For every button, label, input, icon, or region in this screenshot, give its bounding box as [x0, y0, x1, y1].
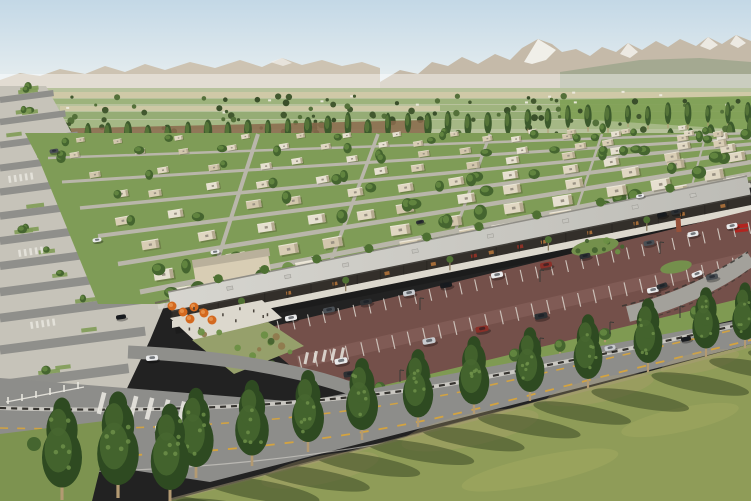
tree-highlight — [620, 147, 625, 152]
scatter-tree — [453, 110, 459, 116]
house-roof-unit — [252, 203, 255, 205]
scatter-tree — [141, 110, 147, 116]
umbrella-top — [180, 309, 184, 313]
tree-leaf-highlight — [176, 442, 180, 446]
house-roof-unit — [292, 200, 295, 202]
scatter-tree — [736, 99, 741, 104]
tree-highlight — [344, 144, 349, 150]
house-roof-unit — [512, 206, 516, 209]
scatter-tree — [132, 104, 137, 109]
tree-highlight — [42, 367, 48, 372]
house-roof-unit — [688, 132, 690, 134]
tree-leaf-highlight — [173, 452, 177, 456]
scatter-dot — [574, 101, 577, 103]
scatter-dot — [525, 101, 528, 103]
tree-leaf-highlight — [193, 452, 197, 456]
scatter-tree — [231, 117, 237, 123]
tree-highlight — [409, 200, 417, 206]
house-roof-unit — [346, 135, 348, 136]
tree-leaf-highlight — [186, 410, 190, 414]
tree-leaf-highlight — [66, 418, 71, 423]
tree-leaf-highlight — [301, 430, 305, 434]
scatter-tree — [578, 109, 583, 114]
tree-leaf-highlight — [306, 401, 310, 405]
tree-highlight — [550, 147, 556, 151]
scatter-dot — [253, 309, 255, 312]
car-windshield — [149, 356, 155, 359]
scatter-tree — [537, 105, 542, 110]
scatter-tree — [531, 98, 537, 104]
scatter-tree — [497, 113, 501, 117]
tree-leaf-highlight — [176, 435, 180, 439]
tree-leaf-highlight — [119, 446, 124, 451]
scatter-dot — [622, 91, 625, 93]
tree-leaf-highlight — [737, 323, 740, 326]
shape-rect — [60, 106, 440, 111]
scatter-tree — [281, 112, 287, 118]
tree-highlight — [245, 122, 250, 133]
tree-highlight — [585, 107, 589, 119]
tree-leaf-highlight — [652, 332, 655, 335]
scatter-tree — [67, 122, 71, 126]
scatter-dot — [239, 307, 241, 310]
scatter-tree — [255, 97, 261, 103]
post-arm — [540, 338, 544, 339]
scatter-dot — [350, 95, 353, 97]
house-roof-unit — [213, 167, 215, 169]
palm-crown — [238, 298, 245, 305]
house-roof-unit — [511, 159, 514, 161]
post-arm — [540, 270, 544, 271]
scatter-tree — [632, 98, 638, 104]
scatter-tree — [538, 115, 544, 121]
tree-highlight — [146, 171, 151, 177]
tree-highlight — [345, 114, 349, 128]
tree-leaf-highlight — [364, 397, 368, 401]
tree-leaf-highlight — [470, 372, 473, 375]
tree-leaf-highlight — [705, 300, 708, 303]
scatter-tree — [592, 247, 598, 253]
tree-highlight — [334, 134, 339, 138]
scatter-dot — [222, 313, 224, 316]
scatter-dot — [548, 96, 551, 98]
tree-highlight — [465, 116, 469, 129]
house-roof-unit — [351, 158, 353, 160]
scatter-tree — [225, 110, 228, 113]
scatter-tree — [408, 108, 415, 115]
umbrella-top — [169, 303, 173, 307]
tree-mid-highlight — [579, 322, 592, 342]
tree-highlight — [21, 107, 24, 111]
house-roof-unit — [162, 169, 164, 171]
post-arm — [680, 306, 684, 307]
tree-leaf-highlight — [163, 451, 167, 455]
tree-leaf-highlight — [747, 301, 750, 304]
tree-highlight — [710, 153, 718, 159]
tree-highlight — [696, 132, 700, 138]
tree-leaf-highlight — [126, 439, 131, 444]
tree-leaf-highlight — [709, 332, 712, 335]
scatter-tree — [221, 117, 225, 121]
scatter-tree — [603, 237, 610, 244]
house-roof-unit — [682, 127, 684, 128]
scatter-dot — [189, 328, 191, 331]
scatter-tree — [511, 105, 517, 111]
house-roof-unit — [174, 212, 177, 214]
cafe-umbrella — [208, 316, 217, 325]
tree-highlight — [631, 129, 635, 133]
tree-highlight — [80, 295, 84, 299]
house-roof-unit — [717, 133, 719, 135]
scatter-tree — [575, 248, 580, 253]
scatter-tree — [101, 117, 106, 122]
tree-highlight — [443, 215, 449, 223]
tree-highlight — [529, 170, 536, 175]
tree-highlight — [574, 135, 579, 139]
tree-highlight — [475, 206, 483, 214]
tree-leaf-highlight — [303, 418, 307, 422]
scatter-dot — [268, 99, 271, 101]
tree-highlight — [340, 171, 345, 178]
tree-mid-highlight — [50, 409, 68, 437]
scatter-tree — [730, 105, 734, 109]
house-roof-unit — [465, 197, 468, 200]
tree-highlight — [599, 147, 604, 152]
scatter-tree — [620, 244, 624, 248]
scatter-tree — [592, 119, 599, 126]
tree-leaf-highlight — [530, 355, 533, 358]
scatter-tree — [556, 107, 561, 112]
tree-leaf-highlight — [521, 364, 524, 367]
tree-highlight — [332, 175, 338, 181]
tree-highlight — [127, 216, 132, 222]
tree-highlight — [428, 138, 433, 142]
scatter-tree — [455, 94, 460, 99]
cafe-umbrella — [168, 302, 177, 311]
tree-highlight — [600, 329, 607, 335]
tree-leaf-highlight — [67, 450, 72, 455]
tree-leaf-highlight — [525, 363, 528, 366]
scatter-tree — [223, 97, 228, 102]
tree-leaf-highlight — [249, 440, 253, 444]
tree-leaf-highlight — [202, 413, 206, 417]
scatter-tree — [527, 96, 530, 99]
tree-mid-highlight — [298, 379, 312, 401]
house-roof-unit — [510, 188, 513, 191]
scatter-tree — [312, 115, 315, 118]
scatter-tree — [395, 101, 399, 105]
tree-leaf-highlight — [700, 335, 703, 338]
tree-leaf-highlight — [743, 303, 746, 306]
scatter-tree — [433, 111, 437, 115]
umbrella-top — [209, 317, 213, 321]
tree-highlight — [62, 139, 67, 144]
tree-mid-highlight — [158, 414, 175, 440]
tree-highlight — [425, 115, 430, 129]
tree-highlight — [665, 104, 669, 116]
tree-highlight — [305, 119, 310, 130]
house-roof-unit — [315, 218, 318, 221]
scatter-tree — [550, 98, 553, 101]
scatter-dot — [572, 92, 575, 94]
scatter-tree — [683, 99, 688, 104]
scatter-tree — [234, 345, 241, 352]
scatter-tree — [531, 114, 538, 121]
tree-leaf-highlight — [588, 355, 591, 358]
tree-leaf-highlight — [422, 387, 425, 390]
tree-highlight — [365, 121, 370, 132]
scatter-tree — [283, 100, 290, 107]
tree-leaf-highlight — [106, 445, 111, 450]
house-roof-unit — [354, 191, 357, 193]
tree-highlight — [285, 120, 289, 132]
tree-highlight — [481, 150, 488, 154]
scatter-tree — [268, 338, 275, 345]
house-roof-unit — [569, 168, 572, 170]
tree-leaf-highlight — [54, 450, 59, 455]
tree-highlight — [481, 187, 489, 193]
tree-leaf-highlight — [594, 356, 597, 359]
tree-leaf-highlight — [300, 420, 304, 424]
tree-highlight — [405, 115, 409, 126]
house-roof-unit — [515, 138, 517, 140]
tree-highlight — [282, 192, 288, 199]
tree-leaf-highlight — [362, 390, 366, 394]
scatter-tree — [257, 347, 261, 351]
tree-leaf-highlight — [706, 317, 709, 320]
tree-highlight — [269, 179, 275, 185]
tree-leaf-highlight — [178, 419, 182, 423]
tree-highlight — [114, 191, 119, 196]
scatter-tree — [618, 122, 621, 125]
tree-highlight — [645, 108, 649, 119]
scatter-tree — [558, 115, 561, 118]
tree-highlight — [445, 113, 449, 126]
tree-leaf-highlight — [740, 330, 743, 333]
house-roof-unit — [454, 133, 456, 134]
scatter-tree — [468, 100, 472, 104]
tree-highlight — [685, 104, 689, 117]
post-arm — [660, 242, 664, 243]
tree-highlight — [440, 132, 444, 137]
scatter-tree — [202, 96, 207, 101]
scatter-tree — [353, 95, 356, 98]
post-arm — [400, 370, 404, 371]
tree-highlight — [706, 107, 709, 117]
tree-leaf-highlight — [640, 324, 643, 327]
post-arm — [610, 322, 614, 323]
house-roof-unit — [615, 189, 619, 192]
scatter-tree — [344, 103, 350, 109]
tree-mid-highlight — [409, 358, 422, 379]
scatter-tree — [561, 93, 567, 99]
tree-highlight — [555, 341, 562, 348]
tree-highlight — [745, 104, 749, 116]
umbrella-top — [201, 310, 205, 314]
scatter-tree — [331, 118, 336, 123]
scatter-dot — [66, 107, 69, 109]
tree-leaf-highlight — [104, 434, 109, 439]
tree-leaf-highlight — [66, 465, 71, 470]
post-arm — [420, 298, 424, 299]
tree-leaf-highlight — [357, 391, 361, 395]
tree-highlight — [165, 135, 170, 139]
tree-leaf-highlight — [202, 423, 206, 427]
house-roof-unit — [579, 145, 581, 147]
scatter-tree — [94, 103, 97, 106]
tree-leaf-highlight — [168, 443, 172, 447]
tree-leaf-highlight — [591, 346, 594, 349]
palm-crown — [545, 236, 552, 243]
tree-leaf-highlight — [358, 413, 362, 417]
tree-mid-highlight — [639, 306, 652, 326]
tree-highlight — [591, 134, 596, 138]
tree-highlight — [57, 271, 62, 275]
house-roof-unit — [364, 214, 367, 217]
tree-leaf-highlight — [353, 375, 357, 379]
scatter-dot — [188, 312, 190, 315]
palm-crown — [342, 277, 349, 284]
tree-mid-highlight — [185, 398, 200, 422]
shape-rect — [0, 92, 751, 98]
tree-highlight — [218, 146, 224, 150]
scatter-tree — [298, 115, 302, 119]
tree-highlight — [530, 131, 535, 136]
house-roof-unit — [265, 165, 267, 167]
tree-highlight — [668, 164, 674, 170]
scatter-tree — [309, 107, 313, 111]
scatter-tree — [237, 118, 240, 121]
tree-highlight — [18, 226, 24, 230]
tree-leaf-highlight — [198, 428, 202, 432]
tree-leaf-highlight — [644, 348, 647, 351]
tree-mid-highlight — [465, 345, 478, 366]
tree-highlight — [631, 146, 638, 150]
tree-mid-highlight — [737, 290, 748, 308]
tree-leaf-highlight — [645, 352, 648, 355]
house-roof-unit — [296, 160, 298, 162]
scatter-tree — [216, 105, 222, 111]
house-roof-unit — [571, 131, 573, 132]
tree-leaf-highlight — [524, 368, 527, 371]
tree-highlight — [625, 107, 629, 117]
scatter-dot — [235, 319, 237, 322]
tree-highlight — [44, 247, 48, 250]
scatter-tree — [326, 98, 329, 101]
house-roof-unit — [154, 192, 157, 194]
umbrella-top — [187, 316, 191, 320]
tree-highlight — [337, 211, 344, 219]
tree-mid-highlight — [105, 403, 123, 432]
scatter-tree — [70, 95, 73, 98]
tree-highlight — [325, 118, 330, 129]
tree-highlight — [703, 128, 707, 132]
tree-highlight — [545, 110, 549, 121]
scatter-tree — [114, 94, 120, 100]
tree-leaf-highlight — [478, 370, 481, 373]
scatter-tree — [369, 112, 375, 118]
tree-highlight — [693, 167, 702, 174]
tree-leaf-highlight — [521, 376, 524, 379]
house-roof-unit — [561, 199, 565, 202]
cafe-umbrella — [200, 309, 209, 318]
tree-leaf-highlight — [588, 366, 591, 369]
tree-mid-highlight — [352, 367, 366, 389]
tree-mid-highlight — [242, 389, 257, 412]
tree-leaf-highlight — [249, 418, 253, 422]
tree-leaf-highlight — [243, 439, 247, 443]
house-roof-unit — [566, 135, 568, 137]
scatter-tree — [275, 93, 281, 99]
tree-highlight — [436, 182, 441, 188]
scatter-tree — [585, 239, 589, 243]
tree-leaf-highlight — [473, 370, 476, 373]
shape-rect — [676, 218, 682, 232]
scatter-tree — [640, 126, 647, 133]
tree-highlight — [726, 104, 729, 116]
tree-highlight — [566, 107, 569, 120]
tree-leaf-highlight — [414, 380, 417, 383]
tree-highlight — [23, 87, 27, 91]
palm-crown — [446, 256, 453, 263]
scatter-tree — [278, 342, 285, 349]
tree-leaf-highlight — [308, 417, 312, 421]
tree-leaf-highlight — [61, 444, 66, 449]
house-roof-unit — [509, 174, 512, 176]
tree-leaf-highlight — [412, 377, 415, 380]
scatter-tree — [72, 116, 76, 120]
scene-svg — [0, 0, 751, 501]
scatter-tree — [288, 349, 293, 354]
tree-leaf-highlight — [312, 405, 316, 409]
scatter-dot — [320, 100, 323, 102]
tree-highlight — [265, 122, 269, 134]
tree-highlight — [135, 147, 141, 151]
tree-leaf-highlight — [705, 305, 708, 308]
tree-leaf-highlight — [416, 369, 419, 372]
tree-highlight — [182, 260, 188, 268]
tree-leaf-highlight — [259, 440, 263, 444]
scatter-tree — [330, 102, 336, 108]
tree-leaf-highlight — [111, 430, 116, 435]
palm-crown — [643, 216, 650, 223]
tree-highlight — [385, 115, 389, 129]
tree-highlight — [605, 107, 609, 120]
tree-leaf-highlight — [748, 317, 751, 320]
tree-leaf-highlight — [49, 417, 54, 422]
scatter-tree — [286, 94, 292, 100]
tree-leaf-highlight — [246, 431, 250, 435]
tree-highlight — [525, 111, 529, 122]
tree-highlight — [153, 264, 161, 271]
tree-leaf-highlight — [638, 318, 641, 321]
scatter-dot — [193, 307, 195, 310]
tree-leaf-highlight — [641, 351, 644, 354]
tree-highlight — [204, 122, 209, 135]
tree-highlight — [505, 113, 509, 126]
house-roof-unit — [265, 226, 268, 229]
tree-leaf-highlight — [586, 333, 589, 336]
tree-highlight — [274, 147, 279, 153]
tree-leaf-highlight — [250, 408, 254, 412]
tree-highlight — [193, 213, 200, 218]
scatter-dot — [262, 315, 264, 318]
scatter-tree — [555, 99, 559, 103]
house-roof-unit — [682, 137, 684, 139]
scatter-dot — [416, 104, 419, 106]
tree-highlight — [704, 136, 710, 140]
house-roof-unit — [416, 167, 419, 169]
